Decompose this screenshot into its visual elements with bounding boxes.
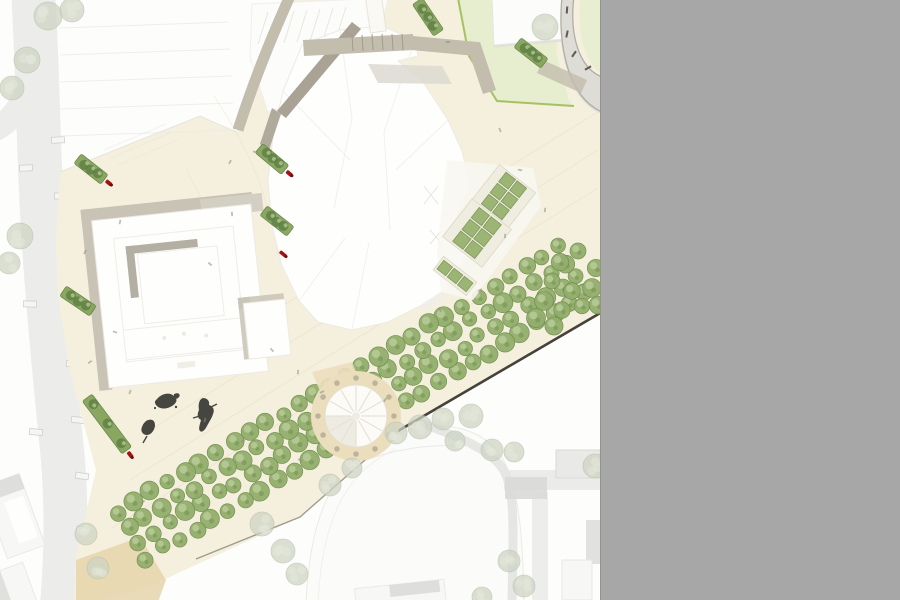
pavilion-dot [320,394,326,400]
pavilion-dot [353,451,359,457]
pavilion-dot [391,413,397,419]
plan-area [0,0,607,600]
pavilion-dot [386,394,392,400]
pavilion-dot [315,413,321,419]
site-plan-image [0,0,900,600]
pavilion-dot [372,446,378,452]
context-roof-1 [505,477,547,499]
context-roof-3 [586,520,600,564]
pavilion-dot [353,375,359,381]
plaza-mark [504,234,506,239]
pavilion-dot [334,446,340,452]
road-bay-marking [51,137,64,144]
plaza-mark [544,208,546,213]
pavilion-dot [334,380,340,386]
gray-side-panel [600,0,900,600]
pavilion-dot [372,380,378,386]
road-bay-marking [75,472,89,480]
screenshot-stage [0,0,900,600]
context-tree [286,563,308,585]
road-bay-marking [23,301,36,307]
museum-annex [238,293,291,360]
shade-polygon [368,64,452,84]
museum-building [80,191,280,391]
plaza-mark [231,212,233,217]
context-building-se [562,560,592,600]
plaza-mark [446,41,450,43]
pavilion-dot [320,432,326,438]
road-bay-marking [19,165,32,172]
road-bay-marking [29,428,43,435]
